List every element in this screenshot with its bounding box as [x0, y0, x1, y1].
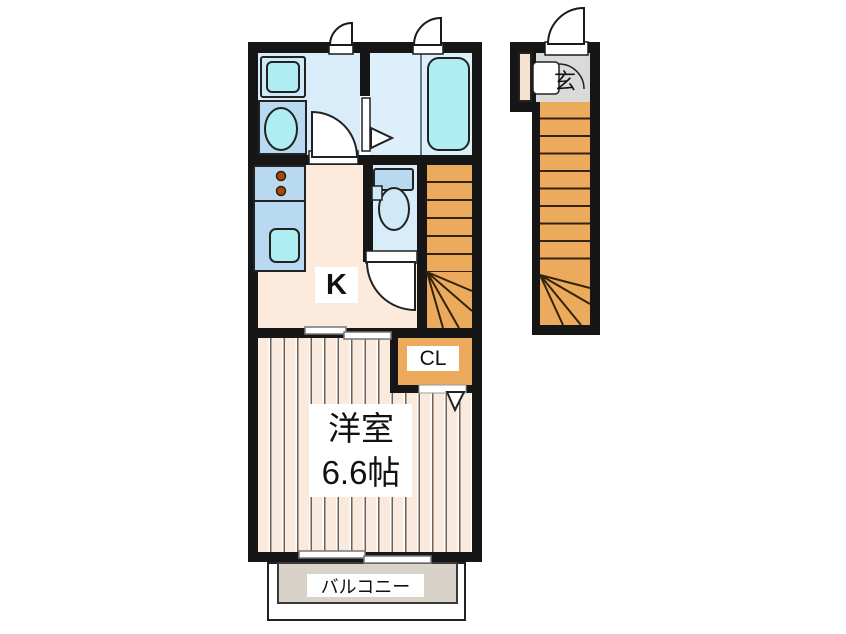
- wall: [248, 552, 482, 562]
- wall: [472, 42, 482, 562]
- entrance-label: 玄: [552, 64, 578, 92]
- wall: [248, 42, 482, 53]
- wall: [417, 165, 427, 338]
- wall: [390, 385, 472, 393]
- wall: [248, 328, 482, 338]
- outer-staircase: [540, 102, 590, 275]
- bathroom-door-panel: [362, 98, 370, 151]
- inner-staircase-winder: [427, 272, 472, 328]
- bathroom-door-gap: [360, 96, 370, 153]
- entrance-door-arc: [548, 8, 584, 44]
- balcony-label: バルコニー: [307, 574, 424, 597]
- shoe-cabinet: [518, 52, 532, 102]
- bathtub: [427, 57, 470, 151]
- outer-staircase-winder: [540, 275, 590, 325]
- bedroom-label-text: 洋室 6.6帖: [322, 407, 401, 495]
- washing-machine-drum: [266, 61, 300, 93]
- window-arc-icon: [414, 18, 441, 45]
- kitchen-label: K: [315, 267, 358, 303]
- closet-label: CL: [407, 346, 459, 371]
- kitchen-sink: [269, 228, 300, 263]
- bedroom-label: 洋室 6.6帖: [310, 404, 412, 497]
- wall: [363, 165, 373, 262]
- toilet-floor: [373, 165, 417, 252]
- wall: [360, 53, 370, 98]
- wall: [248, 155, 482, 165]
- wall: [248, 42, 258, 562]
- floor-plan: K CL 洋室 6.6帖 バルコニー 玄: [0, 0, 846, 634]
- inner-staircase: [427, 165, 472, 272]
- vanity-unit: [258, 100, 307, 155]
